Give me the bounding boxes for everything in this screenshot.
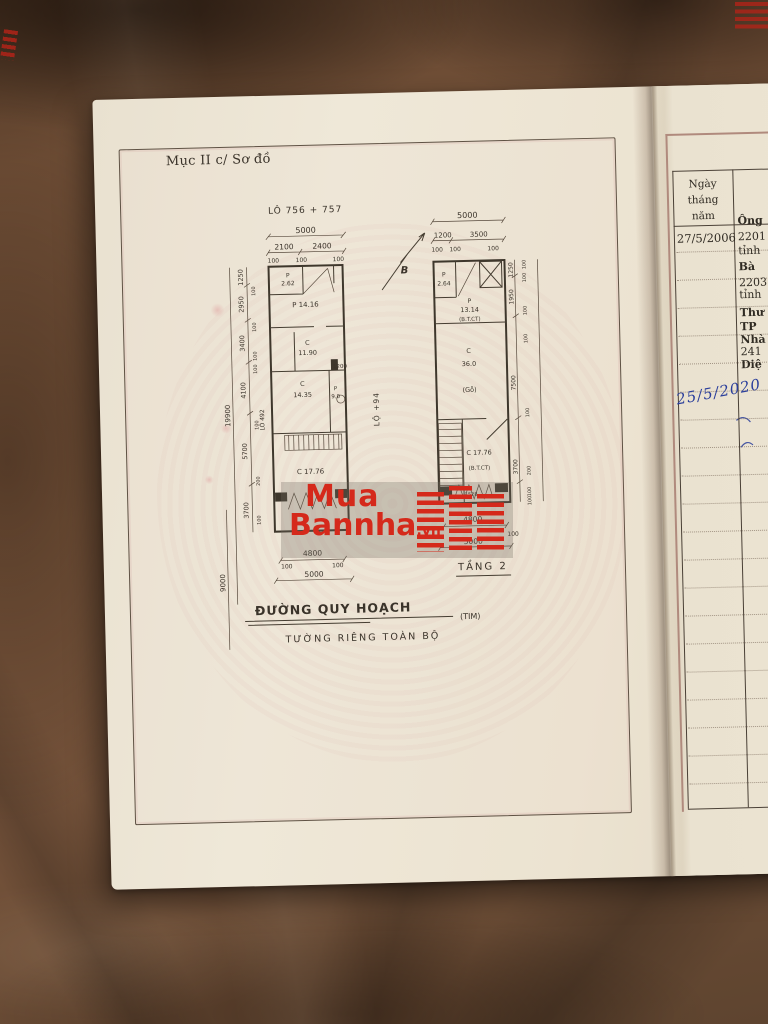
- table-text-fragment: Thư: [740, 306, 764, 320]
- table-text-fragment: Diệ: [741, 358, 762, 372]
- section-title: Mục II c/ Sơ đồ: [166, 152, 271, 170]
- table-date-cell: 27/5/2006: [677, 230, 736, 245]
- table-text-fragment: 241: [741, 345, 762, 359]
- table-text-fragment: 2201: [738, 230, 766, 244]
- logo-bar-column: [449, 486, 472, 554]
- table-text-fragment: Ông: [737, 214, 763, 228]
- logo-bar-column: [477, 494, 504, 552]
- logo-bar-column: [417, 492, 444, 552]
- photo-of-land-certificate: { "title": { "section": "Mục II c/ Sơ đồ…: [0, 0, 768, 1024]
- table-text-fragment: tỉnh: [738, 244, 760, 258]
- table-text-fragment: tỉnh: [739, 288, 761, 302]
- table-text-fragment: Bà: [738, 260, 755, 273]
- watermark-corner-mark-icon: [735, 2, 768, 32]
- table-text-fragment: TP: [740, 320, 757, 333]
- table-column-header: Ngày tháng năm: [672, 176, 733, 225]
- watermark-corner-mark-icon: [0, 29, 18, 61]
- watermark-logo-icon: [417, 486, 507, 554]
- watermark: Mua Bannha.vn: [281, 482, 513, 558]
